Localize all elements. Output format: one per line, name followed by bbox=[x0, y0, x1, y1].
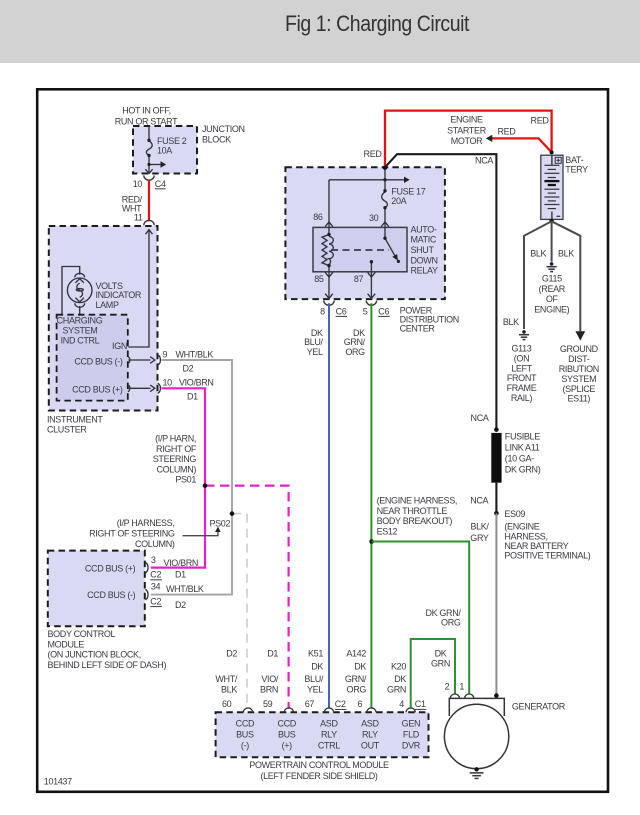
svg-text:RIBUTION: RIBUTION bbox=[559, 364, 599, 374]
svg-text:10A: 10A bbox=[157, 146, 172, 156]
svg-text:8: 8 bbox=[320, 307, 325, 317]
svg-text:WHT/BLK: WHT/BLK bbox=[166, 584, 204, 594]
svg-text:GROUND: GROUND bbox=[560, 344, 599, 354]
svg-text:LINK A11: LINK A11 bbox=[505, 443, 540, 453]
svg-text:BLU/: BLU/ bbox=[304, 674, 323, 684]
svg-text:D1: D1 bbox=[175, 570, 186, 580]
svg-text:MATIC: MATIC bbox=[411, 235, 437, 245]
svg-text:DOWN: DOWN bbox=[411, 255, 438, 265]
svg-text:ASD: ASD bbox=[320, 719, 338, 729]
svg-text:DK: DK bbox=[311, 661, 323, 671]
svg-text:DK GRN): DK GRN) bbox=[505, 464, 541, 474]
svg-text:(10 GA-: (10 GA- bbox=[505, 454, 534, 464]
svg-text:101437: 101437 bbox=[44, 776, 72, 786]
svg-text:FRONT: FRONT bbox=[507, 373, 537, 383]
svg-text:K51: K51 bbox=[308, 648, 323, 658]
svg-text:PS01: PS01 bbox=[175, 475, 196, 485]
svg-text:OF: OF bbox=[546, 294, 559, 304]
svg-text:CCD BUS (-): CCD BUS (-) bbox=[87, 590, 135, 600]
svg-text:HARNESS,: HARNESS, bbox=[504, 531, 547, 541]
svg-text:FUSE 2: FUSE 2 bbox=[157, 136, 187, 146]
svg-text:RIGHT OF: RIGHT OF bbox=[156, 444, 197, 454]
svg-text:DVR: DVR bbox=[402, 741, 421, 751]
svg-text:BODY BREAKOUT): BODY BREAKOUT) bbox=[377, 516, 453, 526]
svg-text:VIO/BRN: VIO/BRN bbox=[164, 558, 199, 568]
svg-text:BLK: BLK bbox=[503, 317, 519, 327]
svg-text:SHUT: SHUT bbox=[411, 245, 435, 255]
svg-text:11: 11 bbox=[134, 212, 143, 222]
svg-text:IGN: IGN bbox=[112, 341, 127, 351]
svg-text:RLY: RLY bbox=[321, 730, 337, 740]
svg-text:C6: C6 bbox=[336, 307, 347, 317]
svg-text:9: 9 bbox=[163, 349, 168, 359]
svg-text:(ON: (ON bbox=[514, 353, 529, 363]
svg-text:C4: C4 bbox=[155, 179, 166, 189]
svg-text:C2: C2 bbox=[335, 699, 346, 709]
svg-text:3: 3 bbox=[151, 555, 156, 565]
svg-text:VIO/: VIO/ bbox=[261, 674, 278, 684]
svg-text:G115: G115 bbox=[542, 273, 562, 283]
svg-text:WHT/: WHT/ bbox=[215, 674, 237, 684]
svg-text:RED: RED bbox=[531, 115, 550, 125]
svg-text:RELAY: RELAY bbox=[411, 266, 438, 276]
svg-text:BUS: BUS bbox=[278, 730, 296, 740]
svg-text:10: 10 bbox=[133, 179, 143, 189]
svg-text:NEAR BATTERY: NEAR BATTERY bbox=[504, 541, 568, 551]
svg-text:GRN/: GRN/ bbox=[345, 674, 367, 684]
svg-text:30: 30 bbox=[369, 213, 379, 223]
svg-text:K20: K20 bbox=[391, 661, 406, 671]
svg-text:2: 2 bbox=[445, 682, 450, 692]
svg-text:G113: G113 bbox=[512, 344, 532, 354]
svg-text:NCA: NCA bbox=[470, 495, 488, 505]
svg-text:RIGHT OF STEERING: RIGHT OF STEERING bbox=[89, 529, 175, 539]
svg-text:OUT: OUT bbox=[361, 741, 380, 751]
svg-text:IND CTRL: IND CTRL bbox=[61, 335, 100, 345]
svg-text:POSITIVE TERMINAL): POSITIVE TERMINAL) bbox=[504, 551, 590, 561]
svg-text:RAIL): RAIL) bbox=[511, 393, 533, 403]
svg-text:ES11): ES11) bbox=[567, 394, 590, 404]
svg-text:SYSTEM: SYSTEM bbox=[63, 326, 98, 336]
svg-text:GRY: GRY bbox=[470, 533, 489, 543]
svg-text:COLUMN): COLUMN) bbox=[135, 539, 175, 549]
svg-text:CCD BUS (-): CCD BUS (-) bbox=[74, 356, 122, 366]
svg-text:CCD: CCD bbox=[277, 719, 296, 729]
svg-text:ES12: ES12 bbox=[377, 527, 398, 537]
svg-text:JUNCTION: JUNCTION bbox=[202, 124, 245, 134]
svg-text:D1: D1 bbox=[187, 392, 198, 402]
svg-text:GEN: GEN bbox=[402, 719, 420, 729]
svg-text:INSTRUMENT: INSTRUMENT bbox=[47, 415, 103, 425]
svg-text:CCD BUS (+): CCD BUS (+) bbox=[72, 385, 123, 395]
svg-text:D2: D2 bbox=[183, 363, 194, 373]
svg-text:1: 1 bbox=[459, 682, 464, 692]
svg-text:YEL: YEL bbox=[307, 684, 323, 694]
svg-text:AUTO-: AUTO- bbox=[411, 224, 437, 234]
svg-text:BLU/: BLU/ bbox=[304, 337, 323, 347]
svg-text:(ON JUNCTION BLOCK,: (ON JUNCTION BLOCK, bbox=[48, 650, 141, 660]
svg-text:C2: C2 bbox=[150, 596, 161, 606]
svg-text:LAMP: LAMP bbox=[96, 300, 119, 310]
svg-text:FRAME: FRAME bbox=[507, 383, 537, 393]
svg-text:Fig 1: Charging Circuit: Fig 1: Charging Circuit bbox=[285, 11, 469, 36]
svg-text:GRN: GRN bbox=[387, 684, 406, 694]
svg-text:60: 60 bbox=[222, 699, 232, 709]
svg-text:NCA: NCA bbox=[471, 413, 489, 423]
svg-text:ENGINE): ENGINE) bbox=[534, 305, 569, 315]
svg-text:ENGINE: ENGINE bbox=[450, 114, 483, 124]
svg-text:(I/P HARN,: (I/P HARN, bbox=[155, 434, 196, 444]
svg-text:DK: DK bbox=[435, 649, 447, 659]
svg-text:CHARGING: CHARGING bbox=[57, 315, 103, 325]
svg-text:POWERTRAIN CONTROL MODULE: POWERTRAIN CONTROL MODULE bbox=[249, 760, 389, 770]
svg-text:GENERATOR: GENERATOR bbox=[512, 701, 566, 711]
svg-text:CCD: CCD bbox=[236, 719, 255, 729]
svg-text:67: 67 bbox=[305, 699, 315, 709]
svg-text:INDICATOR: INDICATOR bbox=[96, 290, 142, 300]
svg-text:D1: D1 bbox=[267, 648, 278, 658]
svg-text:MODULE: MODULE bbox=[48, 639, 85, 649]
svg-text:STEERING: STEERING bbox=[153, 454, 197, 464]
svg-text:GRN/: GRN/ bbox=[344, 337, 366, 347]
svg-text:86: 86 bbox=[313, 212, 323, 222]
svg-text:COLUMN): COLUMN) bbox=[156, 464, 196, 474]
svg-text:CCD BUS (+): CCD BUS (+) bbox=[85, 564, 136, 574]
svg-text:(LEFT FENDER SIDE SHIELD): (LEFT FENDER SIDE SHIELD) bbox=[260, 771, 377, 781]
svg-text:C2: C2 bbox=[150, 570, 161, 580]
svg-text:RUN OR START: RUN OR START bbox=[115, 116, 178, 126]
svg-text:BODY CONTROL: BODY CONTROL bbox=[48, 629, 116, 639]
svg-text:YEL: YEL bbox=[307, 347, 323, 357]
svg-text:FLD: FLD bbox=[403, 730, 420, 740]
svg-text:ES09: ES09 bbox=[504, 509, 525, 519]
svg-text:ORG: ORG bbox=[345, 347, 365, 357]
svg-text:SYSTEM: SYSTEM bbox=[561, 374, 596, 384]
svg-text:WHT/BLK: WHT/BLK bbox=[176, 349, 214, 359]
svg-text:10: 10 bbox=[163, 378, 173, 388]
svg-text:NEAR THROTTLE: NEAR THROTTLE bbox=[377, 506, 448, 516]
svg-text:MOTOR: MOTOR bbox=[451, 136, 483, 146]
svg-text:5: 5 bbox=[363, 307, 368, 317]
svg-text:NCA: NCA bbox=[475, 156, 493, 166]
svg-text:BUS: BUS bbox=[236, 730, 254, 740]
svg-text:4: 4 bbox=[399, 699, 404, 709]
svg-text:DK: DK bbox=[354, 661, 366, 671]
svg-text:BRN: BRN bbox=[260, 684, 278, 694]
svg-text:(ENGINE HARNESS,: (ENGINE HARNESS, bbox=[377, 496, 457, 506]
svg-text:BLK: BLK bbox=[221, 684, 237, 694]
svg-text:34: 34 bbox=[151, 582, 161, 592]
svg-text:87: 87 bbox=[354, 274, 364, 284]
svg-text:BLK: BLK bbox=[558, 249, 574, 259]
svg-text:59: 59 bbox=[263, 699, 273, 709]
svg-text:BLOCK: BLOCK bbox=[202, 134, 231, 144]
svg-text:STARTER: STARTER bbox=[447, 125, 487, 135]
svg-text:DK: DK bbox=[394, 674, 406, 684]
svg-text:ORG: ORG bbox=[441, 617, 461, 627]
svg-text:TERY: TERY bbox=[565, 165, 588, 175]
svg-text:CENTER: CENTER bbox=[400, 323, 436, 333]
svg-text:(SPLICE: (SPLICE bbox=[563, 384, 596, 394]
svg-text:DIST-: DIST- bbox=[568, 354, 590, 364]
svg-text:6: 6 bbox=[357, 699, 362, 709]
svg-text:D2: D2 bbox=[226, 648, 237, 658]
svg-text:(REAR: (REAR bbox=[539, 284, 566, 294]
svg-text:RLY: RLY bbox=[362, 730, 378, 740]
svg-text:BLK/: BLK/ bbox=[470, 521, 489, 531]
svg-text:C6: C6 bbox=[378, 307, 389, 317]
svg-text:RED: RED bbox=[498, 127, 517, 137]
svg-text:CTRL: CTRL bbox=[318, 741, 340, 751]
svg-text:ORG: ORG bbox=[347, 684, 367, 694]
svg-text:85: 85 bbox=[314, 274, 324, 284]
svg-text:C1: C1 bbox=[415, 699, 426, 709]
svg-text:LEFT: LEFT bbox=[511, 363, 532, 373]
svg-text:A142: A142 bbox=[346, 648, 366, 658]
svg-text:ASD: ASD bbox=[361, 719, 379, 729]
svg-text:RED: RED bbox=[364, 149, 383, 159]
svg-text:BEHIND LEFT SIDE OF DASH): BEHIND LEFT SIDE OF DASH) bbox=[48, 660, 167, 670]
svg-text:20A: 20A bbox=[391, 196, 406, 206]
svg-text:GRN: GRN bbox=[431, 658, 450, 668]
svg-text:(I/P HARNESS,: (I/P HARNESS, bbox=[117, 518, 175, 528]
svg-text:PS02: PS02 bbox=[210, 519, 231, 529]
svg-text:(-): (-) bbox=[241, 741, 249, 751]
svg-text:VIO/BRN: VIO/BRN bbox=[179, 378, 214, 388]
svg-text:(ENGINE: (ENGINE bbox=[504, 522, 539, 532]
svg-text:D2: D2 bbox=[175, 600, 186, 610]
svg-text:(+): (+) bbox=[282, 741, 293, 751]
svg-text:CLUSTER: CLUSTER bbox=[47, 425, 87, 435]
svg-text:BLK: BLK bbox=[530, 249, 546, 259]
svg-text:FUSIBLE: FUSIBLE bbox=[505, 432, 540, 442]
svg-text:HOT IN OFF,: HOT IN OFF, bbox=[122, 106, 171, 116]
